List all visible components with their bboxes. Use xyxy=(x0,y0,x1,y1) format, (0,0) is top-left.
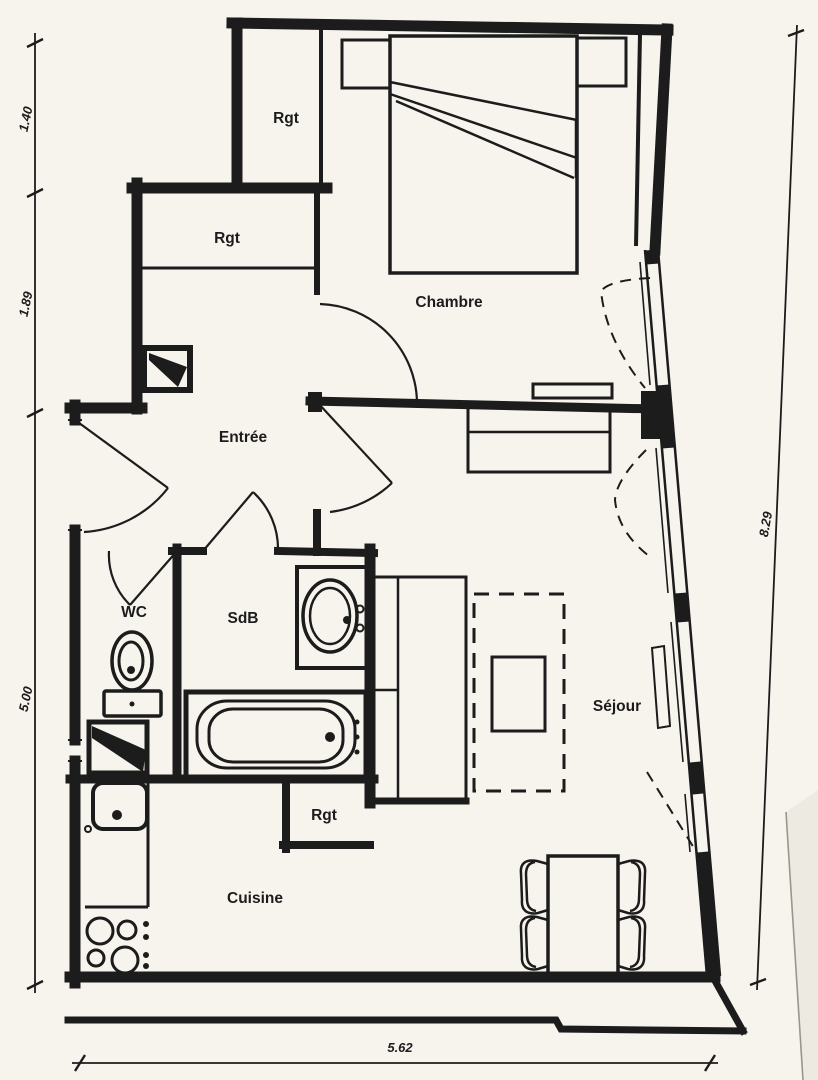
washbasin-drain-dot xyxy=(343,616,351,624)
room-label-rgt-top: Rgt xyxy=(273,110,299,127)
window-pier-junction-block xyxy=(641,391,666,439)
room-label-rgt-bottom: Rgt xyxy=(311,807,337,824)
room-label-sejour: Séjour xyxy=(593,698,641,715)
bathtub-drain-dot xyxy=(325,732,335,742)
room-label-rgt-middle: Rgt xyxy=(214,230,240,247)
floor-plan-svg: Rgt Rgt Chambre Entrée WC SdB Séjour Rgt… xyxy=(0,0,818,1080)
dim-label-bottom: 5.62 xyxy=(387,1040,413,1055)
room-label-chambre: Chambre xyxy=(415,294,483,311)
toilet-drain-dot xyxy=(127,666,135,674)
room-label-entree: Entrée xyxy=(219,429,268,446)
wall-sdb-north-b xyxy=(278,551,374,553)
room-label-sdb: SdB xyxy=(228,610,259,627)
toilet-button-dot xyxy=(130,702,135,707)
room-label-cuisine: Cuisine xyxy=(227,890,283,907)
room-label-wc: WC xyxy=(121,604,147,621)
scanned-floor-plan-page: Rgt Rgt Chambre Entrée WC SdB Séjour Rgt… xyxy=(0,0,818,1080)
kitchen-sink-drain-dot xyxy=(112,810,122,820)
wall-top xyxy=(232,23,668,30)
paper-background xyxy=(0,0,818,1080)
door-jamb-block xyxy=(308,392,322,412)
